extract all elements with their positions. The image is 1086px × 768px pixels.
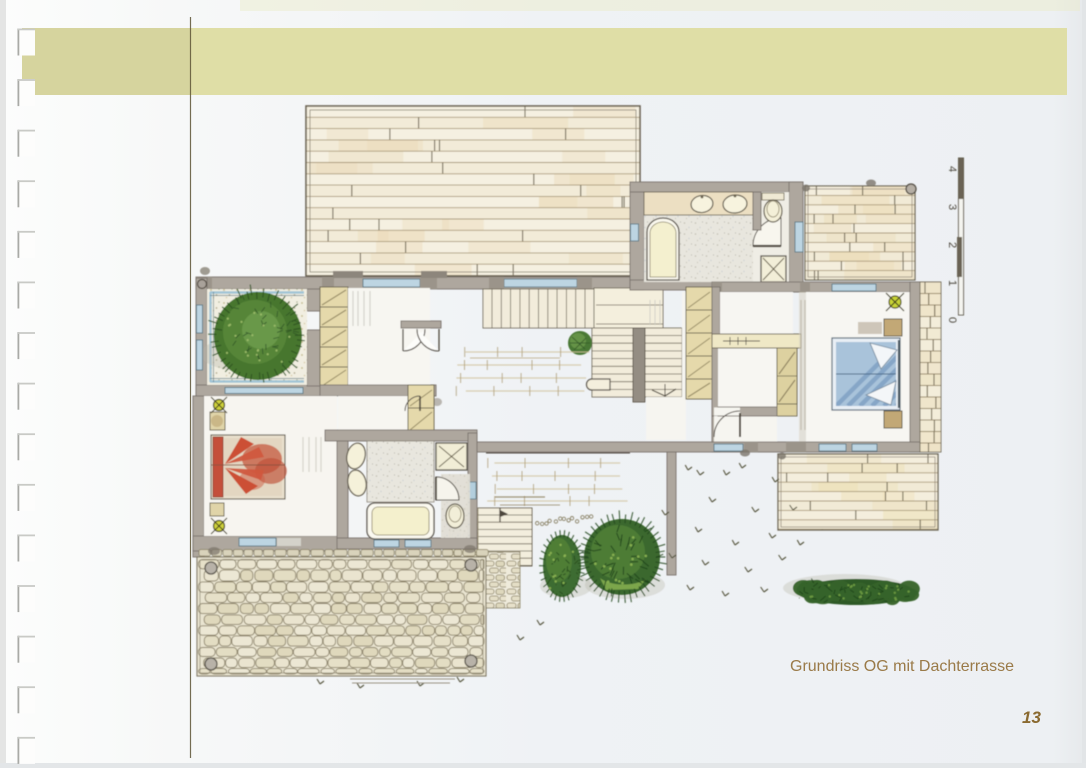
svg-text:Grundriss OG mit Dachterrasse: Grundriss OG mit Dachterrasse [790, 658, 1014, 675]
svg-text:4: 4 [946, 166, 958, 172]
svg-text:1: 1 [946, 280, 958, 286]
svg-text:13: 13 [1022, 708, 1041, 727]
svg-text:3: 3 [946, 204, 958, 210]
svg-text:2: 2 [946, 242, 958, 248]
svg-text:0: 0 [946, 317, 958, 323]
